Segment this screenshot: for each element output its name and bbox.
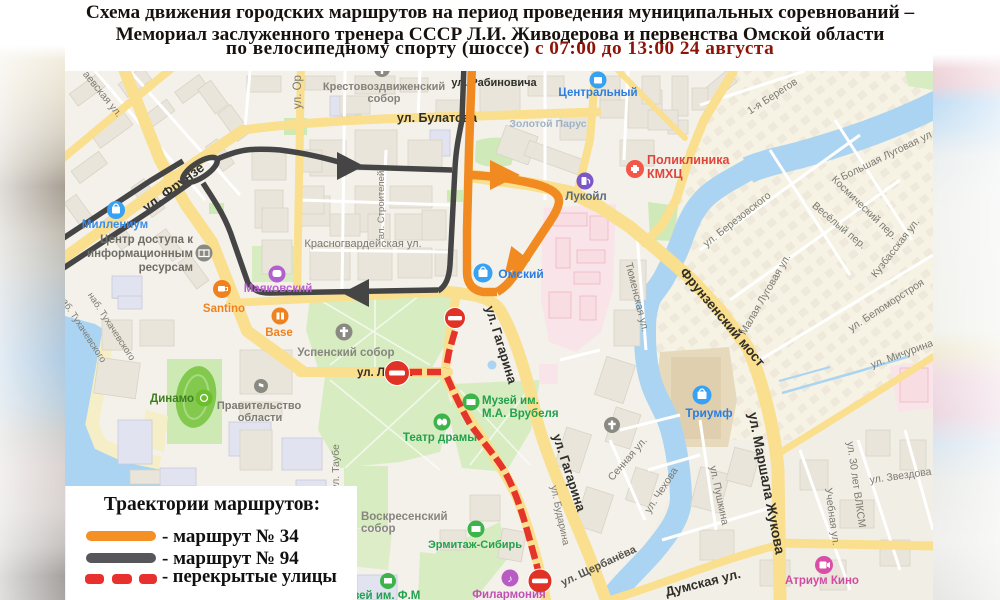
svg-text:Атриум Кино: Атриум Кино [785,575,859,587]
svg-text:Крестовоздвиженский: Крестовоздвиженский [323,81,445,93]
svg-text:Красногвардейская ул.: Красногвардейская ул. [304,238,421,250]
svg-text:Филармония: Филармония [472,589,546,600]
svg-text:Santino: Santino [203,303,245,315]
svg-text:Музей им.: Музей им. [482,395,539,407]
svg-text:собор: собор [367,93,400,105]
svg-text:ал. Строителей: ал. Строителей [376,171,387,240]
svg-text:Омский: Омский [498,267,544,281]
svg-text:ул. Таубе: ул. Таубе [330,444,342,490]
svg-text:Лукойл: Лукойл [565,191,606,203]
svg-text:Маяковский: Маяковский [244,283,313,295]
svg-text:М.А. Врубеля: М.А. Врубеля [482,408,559,420]
svg-text:ул. Л: ул. Л [357,367,385,379]
svg-text:- маршрут № 34: - маршрут № 34 [162,526,299,547]
svg-text:Динамо: Динамо [150,393,194,405]
svg-text:Base: Base [265,327,293,339]
svg-text:ул. Ор: ул. Ор [292,75,304,109]
svg-text:Правительство: Правительство [217,400,302,412]
svg-text:Центр доступа к: Центр доступа к [100,234,193,246]
svg-text:ресурсам: ресурсам [139,262,193,274]
svg-text:Театр драмы: Театр драмы [403,432,477,444]
svg-text:собор: собор [361,523,396,535]
svg-text:КМХЦ: КМХЦ [647,167,683,181]
svg-text:Эрмитаж-Сибирь: Эрмитаж-Сибирь [428,539,522,551]
svg-text:- маршрут № 94: - маршрут № 94 [162,548,299,569]
svg-text:Центральный: Центральный [558,87,637,99]
svg-text:Успенский собор: Успенский собор [297,347,394,359]
svg-text:Поликлиника: Поликлиника [647,153,730,167]
svg-text:Триумф: Триумф [685,406,733,420]
svg-text:Траектории маршрутов:: Траектории маршрутов: [104,494,320,515]
svg-text:области: области [238,412,283,424]
svg-text:Воскресенский: Воскресенский [361,511,448,523]
svg-text:♪: ♪ [508,574,513,585]
svg-text:- перекрытые улицы: - перекрытые улицы [162,567,337,587]
svg-text:Миллениум: Миллениум [82,219,148,231]
svg-text:информационным: информационным [87,248,193,260]
svg-text:зей им. Ф.М: зей им. Ф.М [354,590,421,600]
svg-text:Золотой Парус: Золотой Парус [509,118,586,130]
